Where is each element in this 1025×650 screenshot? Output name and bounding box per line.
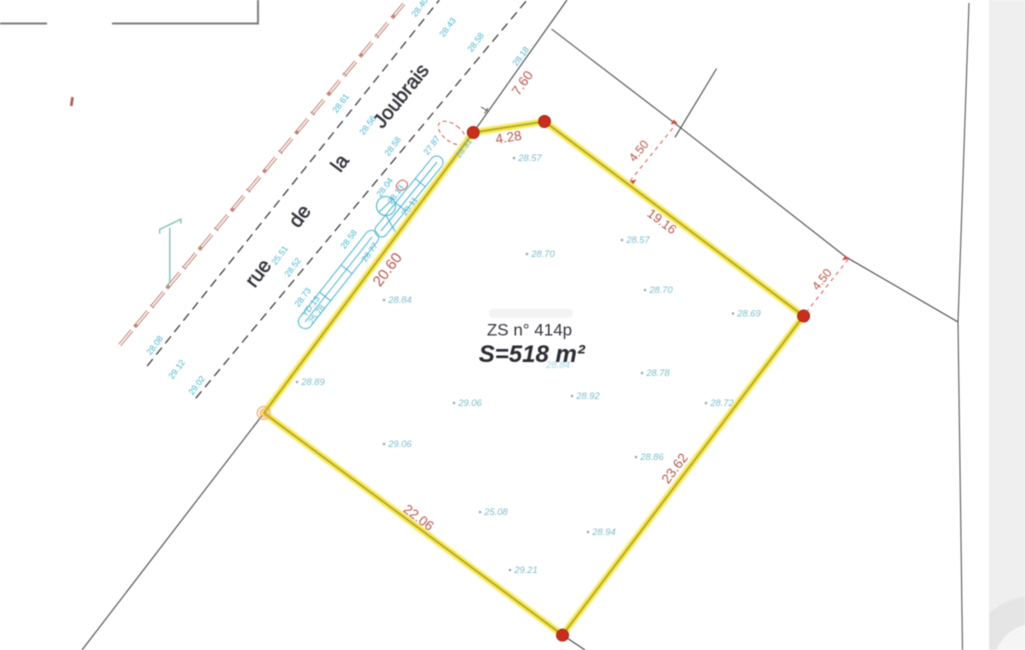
svg-text:28.94: 28.94	[591, 527, 615, 537]
svg-text:ZS n° 414p: ZS n° 414p	[487, 321, 572, 340]
svg-text:29.06: 29.06	[387, 439, 412, 449]
svg-text:28.70: 28.70	[648, 285, 673, 295]
svg-text:28.92: 28.92	[575, 391, 600, 401]
svg-text:28.57: 28.57	[517, 153, 542, 163]
svg-text:28.78: 28.78	[645, 368, 670, 378]
svg-text:28.72: 28.72	[709, 398, 734, 408]
svg-text:28.84: 28.84	[387, 295, 411, 305]
svg-text:25.08: 25.08	[483, 507, 508, 517]
svg-text:S=518 m²: S=518 m²	[479, 341, 586, 368]
svg-text:29.21: 29.21	[513, 565, 537, 575]
svg-text:28.70: 28.70	[530, 249, 555, 259]
svg-text:28.86: 28.86	[639, 452, 664, 462]
svg-text:28.89: 28.89	[300, 377, 324, 387]
svg-text:28.57: 28.57	[625, 235, 650, 245]
svg-text:29.06: 29.06	[457, 398, 482, 408]
svg-text:28.69: 28.69	[736, 309, 760, 319]
